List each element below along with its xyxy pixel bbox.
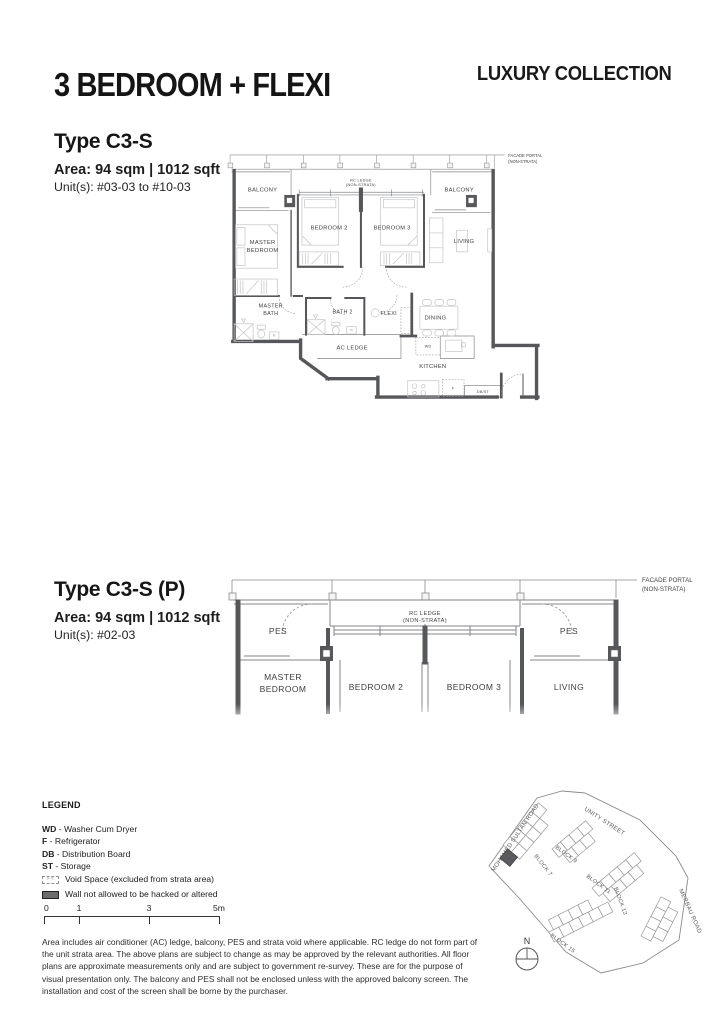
collection-label: LUXURY COLLECTION xyxy=(477,63,672,86)
scale-0: 0 xyxy=(44,903,49,913)
label-master-2: MASTER xyxy=(264,672,302,682)
label-master2-2: BEDROOM xyxy=(260,684,307,694)
facade-portal-label-2: FACADE PORTAL xyxy=(642,577,693,584)
label-rc-ledge: RC LEDGE xyxy=(350,178,372,182)
label-wd: WD xyxy=(425,345,432,349)
block13-cluster xyxy=(641,897,681,946)
site-map: MOHAMED SULTAN ROAD UNITY STREET MERBAU … xyxy=(478,783,724,1000)
label-rc-ledge2-2: (NON-STRATA) xyxy=(403,618,447,624)
legend-wall-text: Wall not allowed to be hacked or altered xyxy=(65,888,218,900)
label-dbst: DB/ST xyxy=(477,390,490,394)
label-bedroom3: BEDROOM 3 xyxy=(374,226,411,232)
label-ac-ledge: AC LEDGE xyxy=(336,346,367,352)
legend: LEGEND WD - Washer Cum Dryer F - Refrige… xyxy=(42,800,302,901)
scale-5m: 5m xyxy=(213,903,225,913)
legend-item-wall: Wall not allowed to be hacked or altered xyxy=(42,889,302,901)
legend-desc: - Storage xyxy=(53,861,91,871)
label-bedroom2-2: BEDROOM 2 xyxy=(349,682,404,692)
legend-item-void: >< Void Space (excluded from strata area… xyxy=(42,874,302,886)
label-bedroom3-2: BEDROOM 3 xyxy=(447,682,502,692)
label-bedroom2: BEDROOM 2 xyxy=(311,226,348,232)
legend-void-text: Void Space (excluded from strata area) xyxy=(65,873,214,885)
label-master-bath2: BATH xyxy=(263,311,278,317)
plan1-type: Type C3-S xyxy=(54,130,254,154)
legend-desc: - Washer Cum Dryer xyxy=(56,824,137,834)
label-pes-right: PES xyxy=(560,626,578,636)
floorplan-type-c3s-p: FACADE PORTAL (NON-STRATA) PES PES xyxy=(226,563,702,725)
label-kitchen: KITCHEN xyxy=(419,364,446,370)
road-unity-street: UNITY STREET xyxy=(583,807,626,838)
facade-portal-line xyxy=(228,155,505,168)
legend-item-db: DB - Distribution Board xyxy=(42,848,302,860)
plan1-area: Area: 94 sqm | 1012 sqft xyxy=(54,162,254,178)
plan1-units: Unit(s): #03-03 to #10-03 xyxy=(54,180,254,194)
plan2-type: Type C3-S (P) xyxy=(54,578,254,602)
scale-1: 1 xyxy=(77,903,82,913)
label-balcony-left: BALCONY xyxy=(248,188,277,194)
void-space-icon: >< xyxy=(42,876,59,884)
label-f: F xyxy=(452,387,455,391)
compass-n-label: N xyxy=(524,936,531,946)
scale-tick xyxy=(44,916,45,924)
block13-label: BLOCK 13 xyxy=(612,887,628,916)
thin-walls xyxy=(231,169,501,397)
legend-desc: - Distribution Board xyxy=(54,849,130,859)
columns-2 xyxy=(320,646,621,661)
label-rc-ledge-2: RC LEDGE xyxy=(409,611,441,617)
legend-heading: LEGEND xyxy=(42,800,302,810)
plan2-info: Type C3-S (P) Area: 94 sqm | 1012 sqft U… xyxy=(54,578,254,642)
thick-walls xyxy=(233,171,538,399)
legend-item-f: F - Refrigerator xyxy=(42,835,302,847)
plan2-units: Unit(s): #02-03 xyxy=(54,628,254,642)
label-master-bedroom2: BEDROOM xyxy=(247,248,279,254)
label-living: LIVING xyxy=(454,239,475,245)
compass-needle xyxy=(516,948,538,959)
scale-3: 3 xyxy=(147,903,152,913)
plan2-area: Area: 94 sqm | 1012 sqft xyxy=(54,610,254,626)
scale-tick xyxy=(79,916,80,924)
north-compass: N xyxy=(516,936,538,970)
plan2-fade xyxy=(228,704,702,725)
floorplan-type-c3s: FACADE PORTAL (NON-STRATA) xyxy=(226,118,702,516)
label-living-2: LIVING xyxy=(554,682,584,692)
legend-abbr: ST xyxy=(42,861,53,871)
legend-item-st: ST - Storage xyxy=(42,860,302,872)
site-boundary xyxy=(489,791,688,973)
facade-portal-label: FACADE PORTAL xyxy=(508,153,543,158)
label-master-bath: MASTER xyxy=(259,304,283,310)
label-pes-left: PES xyxy=(269,626,287,636)
disclaimer-text: Area includes air conditioner (AC) ledge… xyxy=(42,936,484,997)
legend-abbr: DB xyxy=(42,849,54,859)
wall-hatch-icon xyxy=(42,891,59,899)
facade-portal-label2-2: (NON-STRATA) xyxy=(642,586,685,593)
facade-portal-label2: (NON-STRATA) xyxy=(508,159,538,164)
label-master-bedroom: MASTER xyxy=(250,240,276,246)
legend-desc: - Refrigerator xyxy=(47,836,100,846)
scale-tick xyxy=(219,916,220,924)
legend-abbr: WD xyxy=(42,824,56,834)
page-title: 3 BEDROOM + FLEXI xyxy=(54,66,330,104)
label-flexi: FLEXI xyxy=(381,311,397,317)
scale-tick xyxy=(149,916,150,924)
label-balcony-right: BALCONY xyxy=(445,188,474,194)
dashed-features xyxy=(279,267,523,397)
facade-portal-line-2 xyxy=(229,580,637,600)
label-rc-ledge2: (NON-STRATA) xyxy=(346,183,376,187)
label-bath2: BATH 2 xyxy=(333,310,353,316)
floorplan-page: 3 BEDROOM + FLEXI LUXURY COLLECTION Type… xyxy=(0,0,724,1024)
legend-item-wd: WD - Washer Cum Dryer xyxy=(42,823,302,835)
scale-bar: 0 1 3 5m xyxy=(44,903,244,933)
scale-line xyxy=(44,916,220,917)
plan1-info: Type C3-S Area: 94 sqm | 1012 sqft Unit(… xyxy=(54,130,254,194)
block7-label: BLOCK 7 xyxy=(532,854,553,878)
label-dining: DINING xyxy=(425,316,447,322)
